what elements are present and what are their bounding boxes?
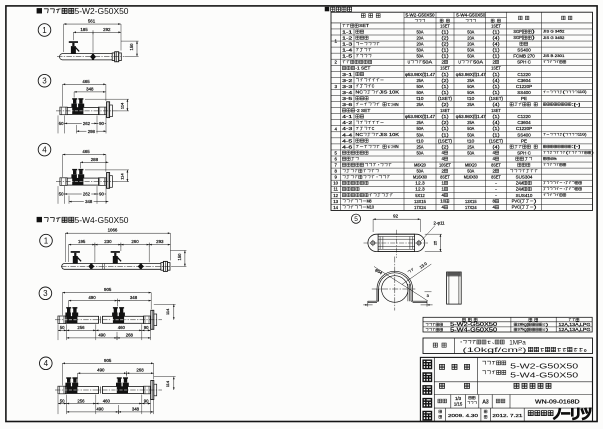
svg-text:4-6: 4-6: [342, 144, 353, 149]
svg-text:8SET: 8SET: [491, 163, 501, 168]
svg-text:1/3: 1/3: [455, 396, 462, 401]
svg-text:50A: 50A: [417, 48, 424, 53]
svg-text:1SET: 1SET: [491, 23, 501, 28]
svg-text::[-]: :[-]: [572, 144, 581, 149]
svg-text:4: 4: [44, 359, 49, 368]
svg-text:50A: 50A: [473, 59, 483, 64]
svg-text:50A: 50A: [417, 150, 424, 155]
svg-text:-2 SET: -2 SET: [355, 108, 370, 113]
svg-text:11G): 11G): [578, 132, 587, 137]
svg-text:(1SET): (1SET): [489, 138, 503, 143]
svg-text:465: 465: [82, 149, 90, 154]
svg-text:50A: 50A: [467, 48, 474, 53]
svg-text:φ53.98X(t)1.47: φ53.98X(t)1.47: [456, 72, 486, 77]
svg-text:PVC(: PVC(: [512, 199, 522, 204]
svg-text:25A: 25A: [467, 102, 474, 107]
svg-text:C1220: C1220: [517, 114, 531, 119]
svg-text::HN: :HN: [391, 144, 398, 149]
svg-text:(1): (1): [442, 126, 450, 131]
svg-text:185: 185: [80, 27, 88, 32]
svg-text:37kg(: 37kg(: [517, 327, 528, 332]
svg-text:50A: 50A: [417, 84, 424, 89]
svg-text:(2): (2): [442, 102, 450, 107]
svg-text:(1): (1): [493, 132, 501, 137]
svg-text:114: 114: [165, 308, 170, 315]
svg-text:4-4: 4-4: [342, 132, 353, 137]
svg-text:ZAM: ZAM: [516, 180, 524, 185]
svg-text:20A: 20A: [467, 35, 474, 40]
svg-text:JIS G 3452: JIS G 3452: [543, 29, 564, 34]
svg-text:M8: M8: [367, 199, 372, 204]
svg-text:25A: 25A: [417, 78, 424, 83]
svg-text:490: 490: [96, 407, 104, 412]
svg-text:(1SET): (1SET): [438, 138, 452, 143]
svg-text:10: 10: [333, 181, 338, 186]
svg-text:M16X60: M16X60: [464, 175, 478, 180]
svg-text:SGP(: SGP(: [513, 35, 523, 40]
svg-text:3-5: 3-5: [342, 96, 353, 101]
svg-text:50A: 50A: [467, 150, 474, 155]
svg-text:NC: NC: [356, 90, 364, 95]
svg-text:5: 5: [354, 216, 358, 223]
svg-text:25A: 25A: [467, 144, 474, 149]
svg-text:(1): (1): [442, 54, 450, 59]
svg-text:SPH C: SPH C: [517, 60, 532, 65]
svg-text:50A: 50A: [417, 54, 424, 59]
svg-text:905: 905: [104, 287, 112, 292]
svg-text:50: 50: [60, 398, 65, 403]
svg-text:65%: 65%: [550, 156, 557, 161]
svg-text:(1): (1): [493, 72, 501, 77]
svg-text:262: 262: [83, 192, 91, 197]
svg-text:4-1: 4-1: [342, 114, 353, 119]
svg-text:13X15: 13X15: [465, 199, 477, 204]
svg-text:50A: 50A: [467, 169, 474, 174]
svg-text:293: 293: [156, 239, 164, 244]
svg-text:114: 114: [120, 102, 125, 109]
svg-text:5-W4-G50X50: 5-W4-G50X50: [450, 327, 497, 333]
svg-text:12: 12: [333, 193, 338, 198]
svg-text:50: 50: [60, 325, 65, 330]
svg-text:4-2: 4-2: [342, 120, 353, 125]
svg-text:(1): (1): [493, 29, 501, 34]
svg-text:(1): (1): [442, 48, 450, 53]
svg-text:150: 150: [129, 43, 134, 51]
svg-text:U: U: [458, 59, 461, 64]
svg-text:90: 90: [99, 192, 104, 197]
svg-text:(4): (4): [493, 35, 501, 40]
svg-text:195: 195: [78, 239, 86, 244]
svg-text:M10: M10: [367, 205, 375, 210]
svg-text:25A: 25A: [417, 102, 424, 107]
svg-text:5-W4-G50X50: 5-W4-G50X50: [456, 13, 486, 18]
svg-text:(1): (1): [442, 114, 450, 119]
svg-text:10SET: 10SET: [439, 163, 451, 168]
svg-text:50A: 50A: [417, 126, 424, 131]
svg-text:1MPa: 1MPa: [509, 340, 526, 347]
svg-text::HN: :HN: [391, 102, 398, 107]
svg-text:t10: t10: [417, 96, 425, 101]
svg-text:5X12: 5X12: [415, 193, 425, 198]
svg-text:90: 90: [99, 121, 104, 126]
svg-text:50A: 50A: [467, 126, 474, 131]
svg-text::[-]: :[-]: [572, 101, 581, 106]
svg-text:1SET: 1SET: [491, 108, 501, 113]
svg-text:50A: 50A: [417, 169, 424, 174]
svg-text:1-3: 1-3: [342, 42, 353, 47]
svg-text:230: 230: [104, 239, 112, 244]
svg-text:(2): (2): [442, 78, 450, 83]
svg-text:460: 460: [103, 398, 111, 403]
svg-text:348: 348: [132, 407, 140, 412]
svg-text:M8X20: M8X20: [465, 163, 477, 168]
svg-text:90: 90: [144, 398, 149, 403]
svg-text:C3604: C3604: [517, 78, 531, 83]
svg-text:50A: 50A: [422, 59, 432, 64]
svg-text:10: 10: [440, 199, 445, 204]
svg-text:(1SET): (1SET): [438, 96, 452, 101]
svg-text:4-3: 4-3: [342, 126, 353, 131]
svg-text:4: 4: [42, 145, 47, 154]
svg-text:12.3: 12.3: [415, 181, 425, 186]
svg-text:A3: A3: [482, 399, 488, 405]
svg-text:11: 11: [333, 187, 338, 192]
svg-text:25A: 25A: [417, 120, 424, 125]
svg-text:25A: 25A: [417, 144, 424, 149]
svg-text:256: 256: [77, 325, 85, 330]
svg-text:17X24: 17X24: [414, 205, 426, 210]
svg-text:12A,13A,LPG: 12A,13A,LPG: [559, 327, 592, 332]
svg-text:FCMB 270: FCMB 270: [513, 54, 535, 59]
svg-text:292: 292: [103, 27, 111, 32]
svg-text:(1): (1): [493, 90, 501, 95]
svg-text:3-6: 3-6: [342, 102, 353, 107]
svg-text:465: 465: [82, 79, 90, 84]
svg-text:114: 114: [120, 173, 125, 180]
svg-text:50A: 50A: [467, 132, 474, 137]
svg-text:8SET: 8SET: [440, 175, 450, 180]
svg-text:1-2: 1-2: [342, 35, 353, 40]
svg-text:1/15: 1/15: [454, 402, 463, 407]
svg-text:1066: 1066: [108, 228, 118, 233]
svg-text:268: 268: [136, 368, 144, 373]
svg-text:JIS B 2301: JIS B 2301: [543, 53, 564, 58]
svg-text:3-4: 3-4: [342, 90, 353, 95]
svg-text:PE: PE: [521, 96, 527, 101]
svg-text:20A: 20A: [417, 42, 424, 47]
svg-text:25A: 25A: [467, 78, 474, 83]
svg-text:(1): (1): [493, 54, 501, 59]
svg-text:150: 150: [177, 253, 182, 261]
svg-text:t10: t10: [467, 138, 475, 143]
svg-text:(1): (1): [442, 90, 450, 95]
svg-text:(4): (4): [493, 144, 501, 149]
svg-text:1SET: 1SET: [491, 66, 501, 71]
svg-text:50: 50: [59, 121, 64, 126]
svg-text:2009. 4.30: 2009. 4.30: [448, 413, 479, 418]
svg-text:256: 256: [77, 398, 85, 403]
svg-text:(2): (2): [442, 144, 450, 149]
svg-text:φ53.98X(t)1.47: φ53.98X(t)1.47: [405, 114, 435, 119]
svg-text:3-1: 3-1: [342, 72, 353, 77]
svg-text:t10: t10: [467, 96, 475, 101]
svg-text:SS400: SS400: [517, 132, 531, 137]
svg-text:13X15: 13X15: [414, 199, 426, 204]
svg-text:5-W4-G50X50: 5-W4-G50X50: [75, 215, 129, 225]
svg-text:C1220: C1220: [517, 72, 531, 77]
svg-text:50A: 50A: [467, 90, 474, 95]
svg-text:M16X60: M16X60: [413, 175, 427, 180]
svg-text:8SET: 8SET: [491, 175, 501, 180]
svg-text:SPH C: SPH C: [517, 150, 532, 155]
svg-text:t10: t10: [417, 138, 425, 143]
svg-text:1SET: 1SET: [440, 108, 450, 113]
svg-text:C1220P: C1220P: [516, 84, 532, 89]
svg-text:PE: PE: [521, 138, 527, 143]
svg-text:50A: 50A: [467, 84, 474, 89]
svg-text:ZAM: ZAM: [516, 186, 524, 191]
svg-text:2012. 7.21: 2012. 7.21: [492, 413, 523, 418]
svg-text:C3604: C3604: [517, 120, 531, 125]
svg-text:SS400: SS400: [517, 90, 531, 95]
svg-text:490: 490: [98, 333, 106, 338]
svg-text:SUS410: SUS410: [516, 193, 533, 198]
svg-text:JIS 10K: JIS 10K: [379, 132, 399, 137]
svg-text:U: U: [408, 59, 411, 64]
svg-text:5-W2-G50X50: 5-W2-G50X50: [75, 6, 129, 16]
svg-text:13: 13: [333, 199, 338, 204]
svg-text:50A: 50A: [417, 132, 424, 137]
svg-text:298: 298: [88, 129, 96, 134]
svg-text:(2): (2): [442, 42, 450, 47]
svg-text:20A: 20A: [467, 42, 474, 47]
svg-text:12.3: 12.3: [415, 187, 425, 192]
svg-text:260: 260: [131, 239, 139, 244]
svg-text:905: 905: [104, 358, 112, 363]
svg-text:348: 348: [85, 199, 93, 204]
svg-text:(1): (1): [442, 29, 450, 34]
svg-text:262: 262: [83, 121, 91, 126]
svg-text:561: 561: [88, 19, 96, 24]
svg-text:1-5: 1-5: [342, 54, 353, 59]
svg-text:(1): (1): [442, 132, 450, 137]
svg-text:4-5: 4-5: [342, 138, 353, 143]
svg-text:3-3: 3-3: [342, 84, 353, 89]
svg-text:(1): (1): [493, 126, 501, 131]
svg-text:(1SET): (1SET): [489, 96, 503, 101]
svg-text:90: 90: [144, 325, 149, 330]
svg-text:(4): (4): [493, 102, 501, 107]
svg-text:114: 114: [165, 380, 170, 387]
svg-text:SS400: SS400: [517, 48, 531, 53]
svg-text:92: 92: [393, 213, 398, 218]
svg-text:25A: 25A: [467, 120, 474, 125]
svg-text:PVC(: PVC(: [512, 205, 522, 210]
svg-text:1: 1: [42, 26, 47, 35]
svg-text:490: 490: [97, 368, 105, 373]
svg-text:M8X20: M8X20: [414, 163, 426, 168]
svg-text:(4): (4): [493, 42, 501, 47]
svg-text:SGP(: SGP(: [513, 29, 523, 34]
svg-text:50A: 50A: [417, 90, 424, 95]
svg-text:SET: SET: [359, 23, 369, 28]
svg-text:3: 3: [43, 289, 48, 298]
svg-text:348: 348: [130, 295, 138, 300]
svg-text:2-φ11: 2-φ11: [434, 220, 446, 225]
svg-text:20A: 20A: [417, 35, 424, 40]
svg-text:5-W2-G50X50: 5-W2-G50X50: [406, 13, 436, 18]
svg-text:(2): (2): [442, 120, 450, 125]
svg-text:(1): (1): [442, 72, 450, 77]
svg-text:1SET: 1SET: [440, 23, 450, 28]
svg-text:288: 288: [91, 157, 99, 162]
svg-text:268: 268: [126, 333, 134, 338]
svg-text:50: 50: [59, 192, 64, 197]
svg-text:(4): (4): [493, 78, 501, 83]
svg-text:1-1: 1-1: [342, 29, 353, 34]
svg-text:11G): 11G): [578, 89, 587, 94]
svg-text:1-4: 1-4: [342, 48, 353, 53]
svg-text:14: 14: [333, 205, 338, 210]
svg-text:(1): (1): [493, 114, 501, 119]
svg-text:(4): (4): [493, 120, 501, 125]
svg-text:1: 1: [44, 236, 49, 245]
svg-text:(1): (1): [493, 48, 501, 53]
svg-text:3-2: 3-2: [342, 78, 353, 83]
svg-text:50A: 50A: [467, 54, 474, 59]
svg-text:(2): (2): [442, 35, 450, 40]
svg-text:25: 25: [433, 240, 438, 245]
svg-text:5-W4-G50X50: 5-W4-G50X50: [510, 371, 578, 380]
svg-text:50A: 50A: [467, 29, 474, 34]
svg-text:JIS G 3452: JIS G 3452: [543, 35, 564, 40]
svg-text:348: 348: [86, 87, 94, 92]
svg-text:-1 SET: -1 SET: [355, 65, 370, 70]
svg-text:SUS304: SUS304: [516, 175, 533, 180]
svg-text:50A: 50A: [417, 29, 424, 34]
svg-text:5-W2-G50X50: 5-W2-G50X50: [510, 361, 578, 370]
svg-text:(1): (1): [493, 84, 501, 89]
svg-text:φ53.98X(t)1.47: φ53.98X(t)1.47: [456, 114, 486, 119]
svg-text:JIS 10K: JIS 10K: [379, 90, 399, 95]
svg-text:1SET: 1SET: [440, 66, 450, 71]
svg-text:460: 460: [118, 325, 126, 330]
svg-text:φ53.98X(t)1.47: φ53.98X(t)1.47: [405, 72, 435, 77]
svg-text:17X24: 17X24: [465, 205, 477, 210]
svg-text:(10kgf/cm²): (10kgf/cm²): [463, 348, 527, 354]
svg-text:WN-09-0168D: WN-09-0168D: [535, 399, 580, 405]
svg-text:C1220P: C1220P: [516, 126, 532, 131]
svg-text:(1): (1): [442, 84, 450, 89]
svg-text:NC: NC: [356, 132, 364, 137]
svg-text:490: 490: [88, 295, 96, 300]
svg-text:3: 3: [42, 77, 47, 86]
